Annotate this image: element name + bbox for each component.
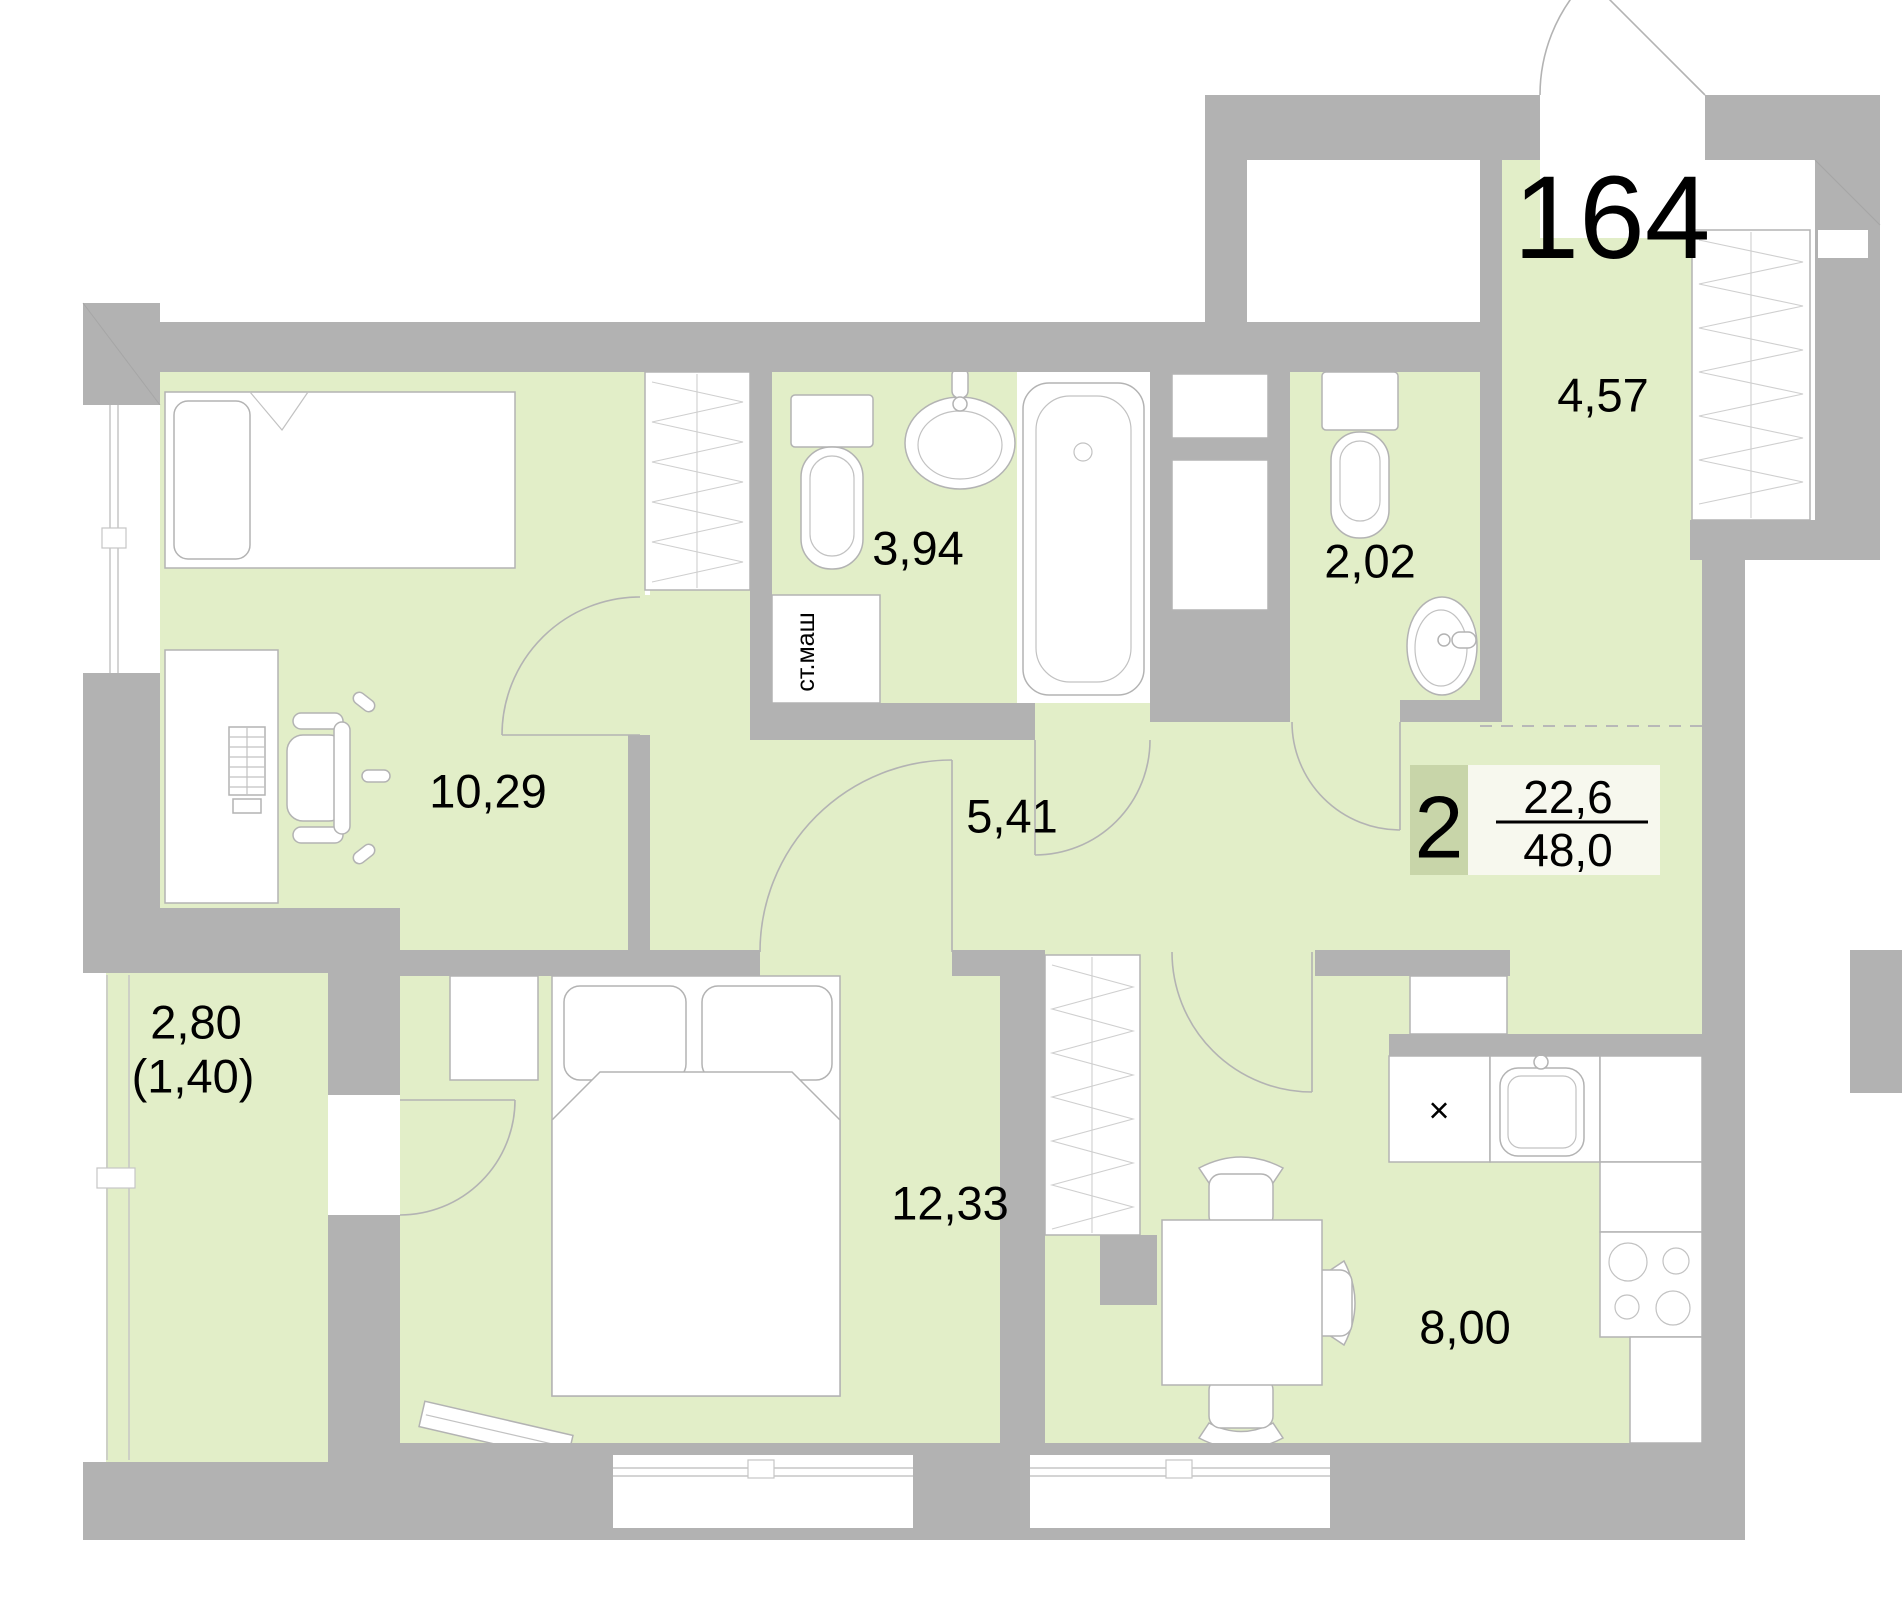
kitchen-counter-cell [1600, 1056, 1702, 1162]
sink-icon-wc [1407, 597, 1477, 695]
area-label-living-room: 10,29 [429, 765, 547, 818]
wall-top-right-a [1205, 95, 1540, 160]
pillow-icon [174, 401, 250, 559]
badge-total-area: 48,0 [1523, 824, 1613, 876]
room-fill-corridor-west [650, 590, 750, 952]
wall-top-main [83, 322, 1502, 372]
wall-kitchen-band [1389, 1034, 1745, 1056]
window-bottom-kitchen-icon [1030, 1455, 1330, 1528]
nightstand-icon [450, 976, 538, 1080]
area-label-hallway: 4,57 [1557, 369, 1648, 422]
area-label-bathroom: 3,94 [872, 522, 963, 575]
door-gap-bathroom [1035, 703, 1150, 740]
room-fill-hallway [1502, 160, 1702, 1012]
entrance-door-icon [1540, 0, 1705, 95]
shaft-box-bottom [1172, 460, 1268, 610]
wall-top-right-b [1705, 95, 1880, 160]
wall-balcony-bottom [83, 1462, 328, 1491]
keyboard-icon [229, 727, 265, 813]
wall-bedroom-top-left [400, 950, 760, 976]
window-left-icon [83, 405, 160, 673]
floor-plan-canvas: 164 4,57 3,94 2,02 10,29 5,41 12,33 8,00… [0, 0, 1902, 1600]
kitchen-cabinet-bottom [1630, 1337, 1702, 1443]
wall-balcony-top [83, 908, 400, 973]
wall-right-outer [1815, 160, 1880, 560]
room-fill-corridor-mid [750, 740, 1172, 952]
wall-pier-left [83, 673, 160, 913]
wall-slot [1818, 230, 1868, 258]
badge-living-area: 22,6 [1523, 771, 1613, 823]
wall-neighbor-fragment [1850, 950, 1902, 1093]
duct-box [1410, 976, 1507, 1034]
kitchen-sink-icon [1490, 1044, 1600, 1162]
shaft-box-top [1172, 374, 1268, 438]
double-bed-icon [552, 976, 840, 1396]
washing-machine-label: ст.маш [792, 612, 820, 691]
area-label-bedroom: 12,33 [891, 1177, 1009, 1230]
apartment-number: 164 [1514, 152, 1711, 284]
wall-kitchen-top [1315, 950, 1510, 976]
area-label-balcony: 2,80 [150, 996, 241, 1049]
wall-living-room-door [628, 735, 650, 952]
apartment-type-badge: 2 22,6 48,0 [1410, 765, 1660, 877]
floor-plan-drawing: 164 4,57 3,94 2,02 10,29 5,41 12,33 8,00… [0, 0, 1902, 1600]
area-label-kitchen: 8,00 [1419, 1301, 1510, 1354]
door-gap-bedroom [760, 950, 952, 976]
door-gap-living-room [626, 595, 652, 735]
window-bottom-bedroom-icon [613, 1455, 913, 1528]
toilet-icon-bathroom [791, 395, 873, 569]
area-label-corridor: 5,41 [966, 790, 1057, 843]
dining-chair-bottom-icon [1199, 1378, 1283, 1449]
wall-wc-bottom [1400, 700, 1502, 722]
area-label-balcony-reduced: (1,40) [132, 1050, 255, 1103]
wall-below-balcony [83, 1491, 328, 1540]
wall-wc-right [1480, 160, 1502, 722]
bathtub-icon [1017, 372, 1150, 703]
stove-icon [1600, 1232, 1702, 1337]
wall-kitchen-stub [1100, 1235, 1157, 1305]
wardrobe-icon-corridor [1045, 955, 1140, 1235]
dining-table-icon [1162, 1220, 1322, 1385]
balcony-door-opening [328, 1095, 400, 1215]
wardrobe-icon-living-room [645, 372, 750, 590]
dining-chair-top-icon [1199, 1157, 1283, 1228]
badge-room-count: 2 [1415, 778, 1464, 877]
kitchen-counter-cell-right [1600, 1162, 1702, 1232]
wall-bathroom-left [750, 372, 772, 703]
washing-machine-icon [772, 595, 880, 703]
wall-bathroom-bottom [750, 703, 1035, 740]
counter-mark: × [1428, 1090, 1449, 1131]
wall-step [1690, 520, 1880, 560]
area-label-wc: 2,02 [1324, 535, 1415, 588]
toilet-icon-wc [1322, 372, 1398, 538]
wall-right-inner [1702, 560, 1745, 1443]
